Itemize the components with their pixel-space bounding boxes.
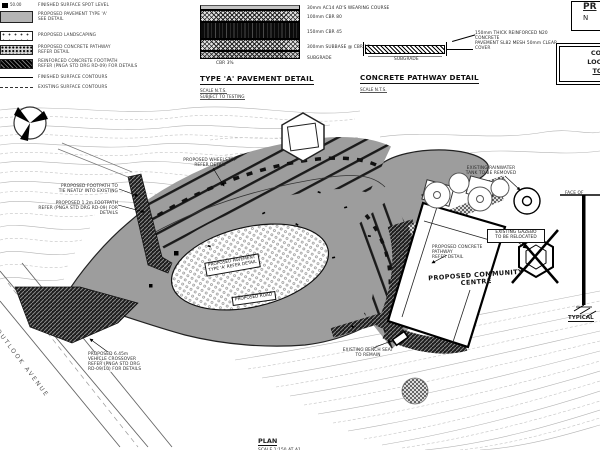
plan-title-block: PLAN SCALE 1:150 AT A1: [258, 428, 301, 450]
subbase-band: [200, 39, 300, 52]
legend-item-label: PROPOSED LANDSCAPING: [38, 33, 96, 38]
label-line: TO REMAIN: [355, 353, 380, 358]
label-bench-seat: EXISTING BENCH SEAT TO REMAIN: [338, 348, 398, 358]
layer-label: 30mm AC14 AD'S WEARING COURSE: [307, 6, 389, 11]
titleblock-text: PR: [583, 2, 600, 12]
drawing-sheet: 50.00 FINISHED SURFACE SPOT LEVEL PROPOS…: [0, 0, 600, 450]
existing-tree: [402, 378, 428, 404]
bollard-face-label: FACE OF: [565, 191, 584, 196]
subgrade-band: [200, 51, 300, 59]
label-line: TANK TO BE REMOVED: [466, 171, 517, 176]
label-vehicle-crossover: PROPOSED 6.45m VEHICLE CROSSOVER REFER (…: [88, 352, 146, 372]
label-line: REFER DETAIL: [194, 163, 225, 168]
layer-label: SUBGRADE: [307, 56, 332, 61]
legend-item-label: REFER (PNGA STD DRG RD-09) FOR DETAILS: [38, 64, 137, 69]
layer-label: 150mm CBR 45: [307, 30, 342, 35]
pathway-detail-scale: SCALE N.T.S.: [360, 87, 387, 93]
titleblock-note: LOCATE: [557, 58, 600, 67]
label-gazebo-relocate: EXISTING GAZEBO TO BE RELOCATED: [487, 229, 545, 243]
section-end-tick: [363, 42, 364, 56]
pathway-annotation: 150mm THICK REINFORCED N20 CONCRETE PAVE…: [475, 31, 567, 51]
footpath-swatch: [0, 59, 33, 69]
spot-level-swatch: [2, 3, 8, 8]
pathway-section-bar: [365, 45, 445, 54]
existing-contour-swatch: [0, 87, 33, 88]
feature-tree: [14, 107, 48, 141]
legend-item-label: EXISTING SURFACE CONTOURS: [38, 85, 107, 90]
section-extension-line: [447, 49, 473, 50]
label-footpath-12m: PROPOSED 1.2m FOOTPATH REFER (PNGA STD D…: [22, 201, 118, 216]
finished-contour-swatch: [0, 77, 33, 78]
landscaping-swatch: [0, 31, 33, 41]
label-concrete-pathway: PROPOSED CONCRETE PATHWAY REFER DETAIL: [432, 245, 487, 260]
label-line: REFER (PNGA STD DRG RD-09) FOR DETAILS: [38, 206, 118, 216]
cbr80-band: [200, 10, 300, 22]
spot-level-value: 50.00: [10, 2, 21, 7]
legend-item-label: REFER DETAIL: [38, 50, 69, 55]
cbr45-band: [200, 22, 300, 39]
label-wheelstop: PROPOSED WHEELSTOP REFER DETAIL: [178, 158, 242, 168]
existing-footpath-lines: [58, 143, 132, 177]
titleblock-note: CONT: [557, 49, 600, 58]
legend-item-label: FINISHED SURFACE CONTOURS: [38, 75, 107, 80]
pathway-annotation-line: PAVEMENT SL82 MESH 50mm CLEAR COVER: [475, 41, 557, 51]
pathway-subgrade-label: SUBGRADE: [394, 57, 419, 62]
annotation-leader: [452, 34, 475, 42]
pathway-annotation-line: 150mm THICK REINFORCED N20 CONCRETE: [475, 31, 548, 41]
label-line: REFER DETAIL: [432, 255, 463, 260]
legend-item-label: SEE DETAIL: [38, 17, 63, 22]
plan-title: PLAN: [258, 437, 277, 446]
titleblock-box-1: PR N: [571, 1, 600, 31]
label-line: TO BE RELOCATED: [495, 235, 536, 240]
legend-item-label: FINISHED SURFACE SPOT LEVEL: [38, 3, 109, 8]
label-line: RD-09/10) FOR DETAILS: [88, 367, 141, 372]
concrete-pathway-swatch: [0, 45, 33, 55]
rainwater-tank: [514, 188, 540, 214]
bollard-detail-linework: [560, 195, 600, 317]
titleblock-note: TO C: [557, 67, 600, 76]
label-line: TIE NEATLY INTO EXISTING: [59, 189, 118, 194]
pit-marker: [149, 284, 153, 288]
label-rainwater-tank: EXISTING RAINWATER TANK TO BE REMOVED: [460, 166, 522, 176]
cbr-base-label: CBR 3%: [216, 61, 234, 66]
pavement-swatch: [0, 11, 33, 23]
bollard-detail-title: TYPICAL: [568, 315, 594, 322]
layer-label: 100mm CBR 80: [307, 15, 342, 20]
label-footpath-tie: PROPOSED FOOTPATH TO TIE NEATLY INTO EXI…: [40, 184, 118, 194]
titleblock-box-2: CONT LOCATE TO C: [556, 43, 600, 85]
titleblock-text: N: [583, 14, 600, 22]
pit-marker: [174, 251, 179, 256]
layer-label: 300mm SUBBASE @ CBR 15: [307, 45, 370, 50]
